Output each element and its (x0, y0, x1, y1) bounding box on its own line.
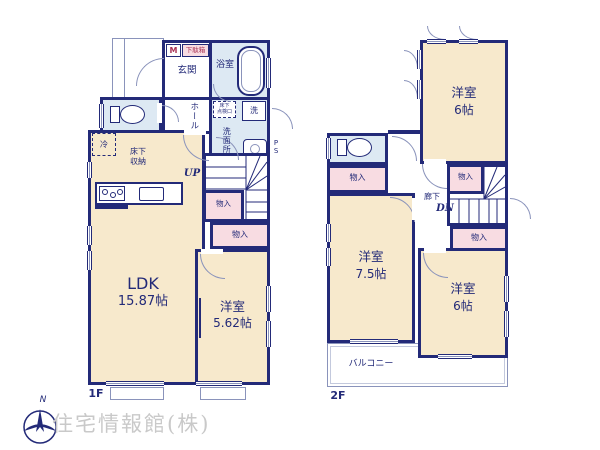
bedroom-2f-top-door-gap (424, 159, 446, 164)
kitchen-wall-stub (95, 204, 128, 209)
floor-label-2f: 2F (325, 390, 351, 403)
shoebox-label: 下駄箱 (182, 47, 209, 54)
balcony-label: バルコニー (336, 359, 406, 369)
toilet-2f-door-arc (392, 136, 417, 161)
window (350, 339, 398, 344)
hallway-label: 廊下 (419, 192, 445, 201)
window (459, 39, 478, 44)
washroom-label: 洗面所 (222, 120, 231, 160)
window (99, 104, 104, 128)
underfloor-storage-line1: 床下 (130, 147, 146, 156)
sliding-door-ldk (196, 258, 198, 298)
floor-label-1f: 1F (84, 388, 108, 401)
toilet-bowl-icon (347, 138, 372, 157)
dn-label: DN (432, 203, 458, 215)
bedroom-2f-top-door-arc (422, 164, 447, 189)
window (326, 138, 331, 159)
window (87, 162, 92, 178)
meter-label: M (166, 46, 181, 55)
closet-2f-left-label: 物入 (327, 173, 388, 182)
window (87, 226, 92, 245)
bathtub-inner (241, 50, 261, 92)
window (266, 58, 271, 88)
floor-plan-canvas: M 下駄箱 玄関 浴室 ホール 床下 点検口 洗 洗面所 PS (0, 0, 600, 450)
bedroom-2f-right-size: 6帖 (418, 300, 508, 314)
bedroom-2f-top-name: 洋室 (420, 86, 508, 100)
company-watermark: 住宅情報館(株) (52, 412, 272, 436)
room-bedroom-2f-top (420, 40, 508, 164)
toilet-bowl-icon (120, 105, 145, 124)
closet-2f-mid-label: 物入 (447, 173, 484, 182)
bedroom-2f-right-door-gap (424, 248, 446, 253)
window (504, 311, 509, 337)
terrace-step (200, 387, 246, 400)
compass-n-label: N (36, 395, 50, 405)
ldk-size: 15.87帖 (93, 295, 193, 310)
kitchen-sink-icon (139, 187, 164, 201)
bedroom-2f-left-name: 洋室 (327, 250, 415, 264)
window (326, 224, 331, 242)
ps-label: PS (272, 137, 280, 157)
toilet-door-gap (157, 103, 162, 123)
porch-step-line (124, 38, 125, 99)
closet-2f-right-label: 物入 (450, 233, 508, 242)
underfloor-access-line2: 点検口 (217, 109, 232, 115)
terrace-step (110, 387, 164, 400)
awning-window-arc (427, 26, 445, 40)
stair-window-arc (510, 198, 531, 219)
window (417, 50, 422, 69)
bedroom-1f-size: 5.62帖 (195, 317, 270, 331)
awning-window-arc (404, 50, 418, 68)
bedroom-1f-door-gap (201, 249, 223, 254)
toilet-tank-icon (110, 106, 120, 123)
back-door-arc (272, 108, 293, 129)
window (427, 39, 446, 44)
bedroom-2f-left-size: 7.5帖 (327, 268, 415, 282)
washer-label: 洗 (242, 106, 266, 115)
window (87, 251, 92, 270)
stove-icon (99, 186, 125, 201)
bedroom-2f-left-door-gap (412, 198, 417, 220)
underfloor-storage-line2: 収納 (130, 157, 146, 166)
hall-label: ホール (188, 100, 198, 132)
up-label: UP (180, 168, 204, 180)
window (106, 381, 164, 386)
bedroom-1f-name: 洋室 (195, 300, 270, 314)
toilet-tank-icon (337, 139, 347, 156)
window (196, 381, 242, 386)
genkan-label: 玄関 (162, 66, 212, 77)
corridor-top-wall (388, 130, 423, 134)
closet-1f-b-label: 物入 (210, 230, 270, 239)
awning-window-arc (404, 80, 418, 98)
window (438, 354, 472, 359)
bedroom-2f-right-name: 洋室 (418, 282, 508, 296)
bath-label: 浴室 (209, 60, 241, 70)
bedroom-2f-top-size: 6帖 (420, 104, 508, 118)
closet-1f-a-label: 物入 (203, 200, 244, 209)
ldk-name: LDK (93, 275, 193, 293)
awning-window-arc (459, 26, 477, 40)
fridge-label: 冷 (92, 140, 116, 149)
